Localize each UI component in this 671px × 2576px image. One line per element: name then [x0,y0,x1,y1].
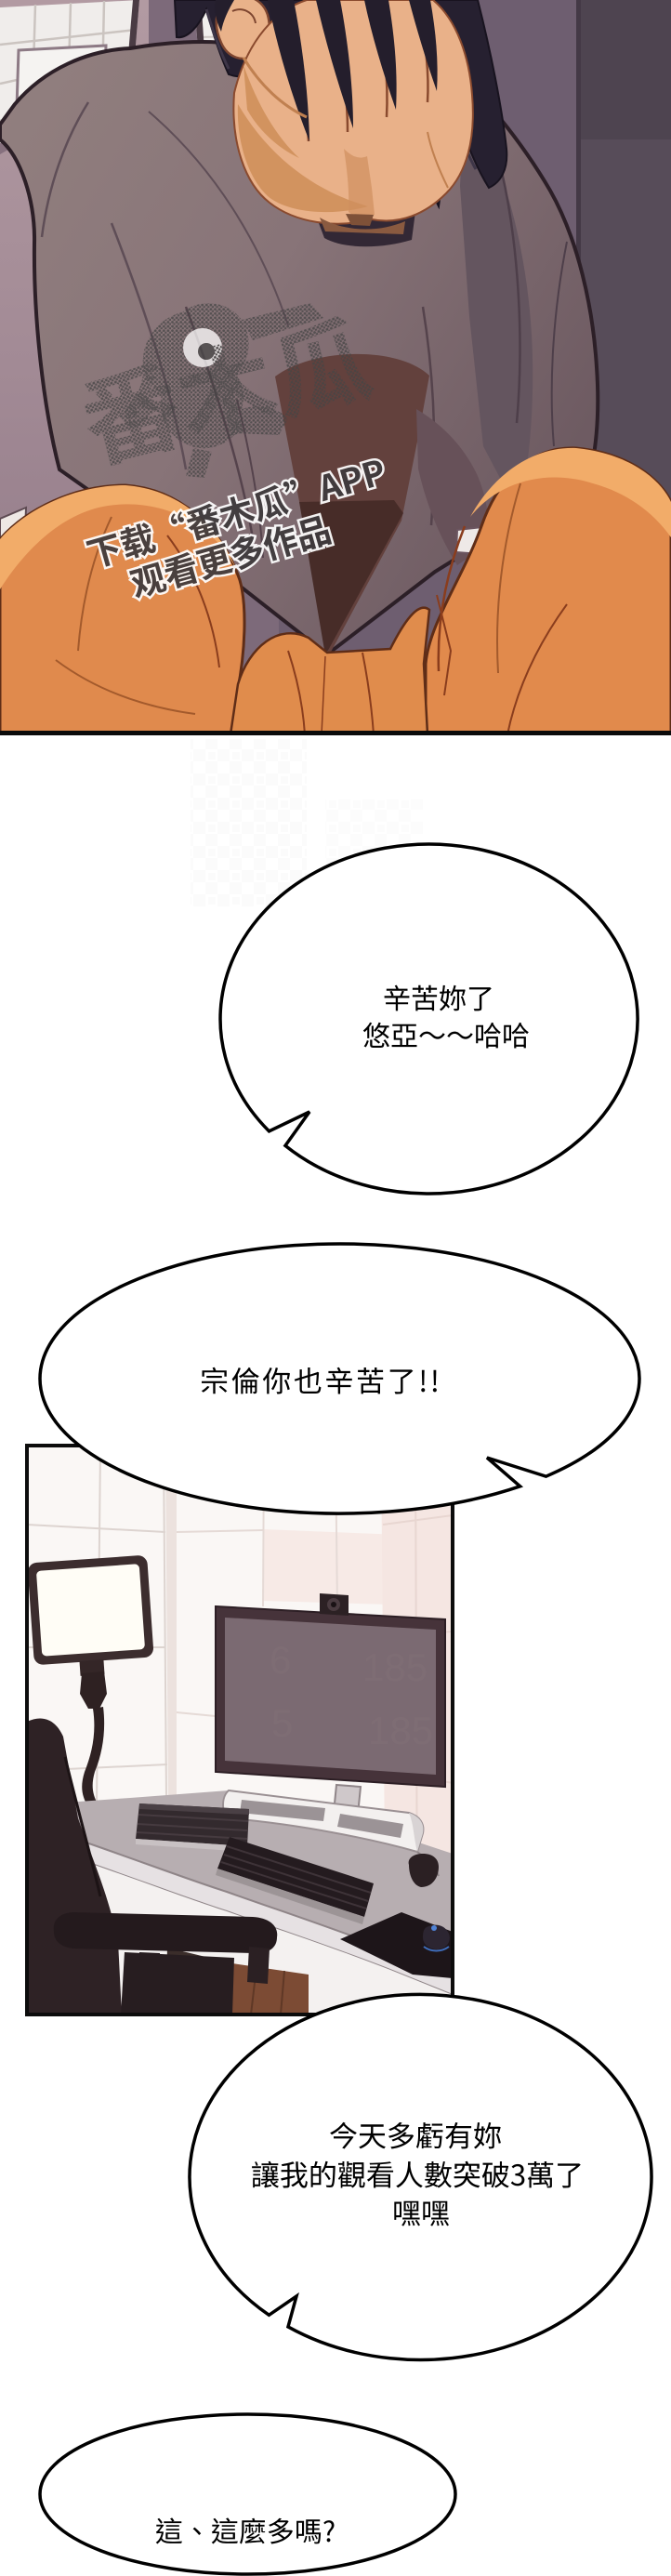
svg-text:6: 6 [270,1638,291,1682]
svg-text:185: 185 [368,1709,433,1752]
svg-text:185: 185 [362,1645,428,1689]
svg-text:5: 5 [271,1701,293,1745]
